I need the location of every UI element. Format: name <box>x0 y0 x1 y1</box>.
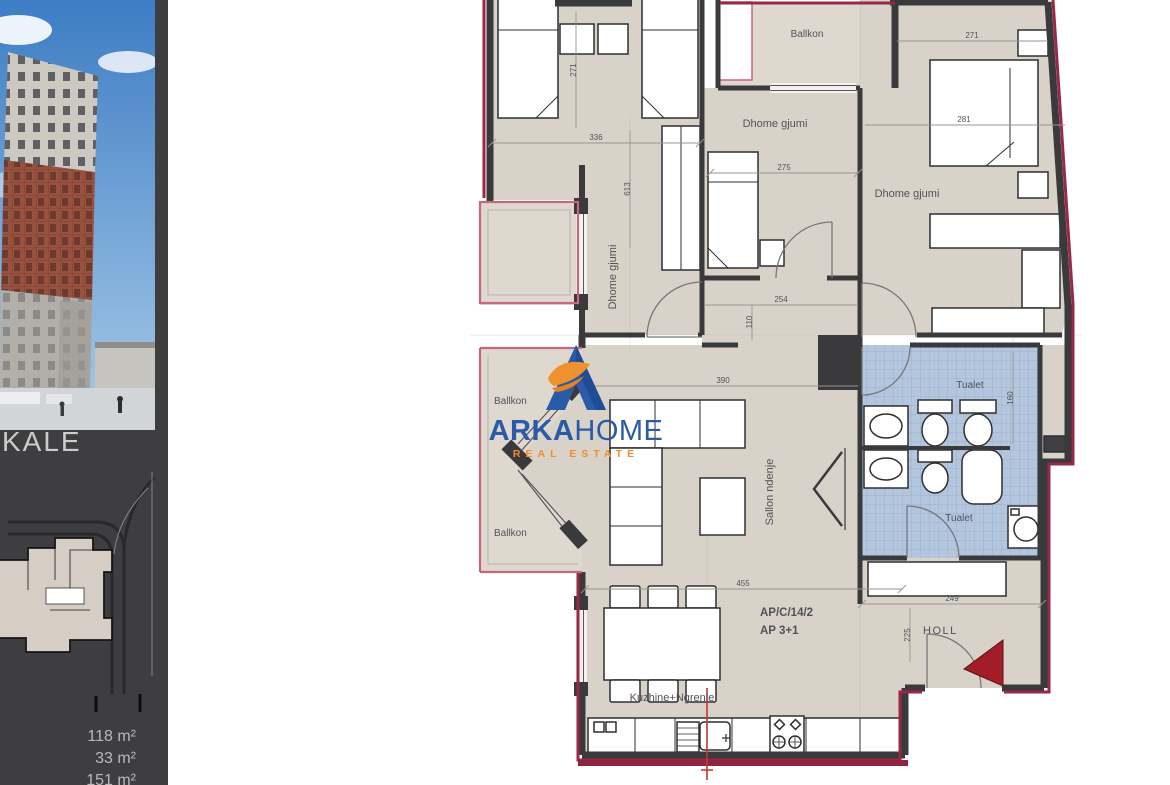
dim-kitchen-width: 455 <box>736 579 750 588</box>
shaft-block <box>818 335 860 390</box>
building-render-photo <box>0 0 155 430</box>
area-value-2: 33 m² <box>0 748 136 770</box>
dim-bed3-bed-width: 281 <box>957 115 971 124</box>
dim-corridor-width: 254 <box>774 295 788 304</box>
dim-corridor-small: 110 <box>745 315 754 328</box>
label-bedroom-right: Dhome gjumi <box>875 188 940 200</box>
label-living-room: Sallon ndenje <box>764 459 776 526</box>
area-summary: 118 m² 33 m² 151 m² <box>0 726 136 785</box>
label-kitchen-dining: Kuzhine+Ngrenie <box>630 692 715 704</box>
dim-bed1-width: 271 <box>569 63 578 77</box>
label-balcony-left-lower: Ballkon <box>494 528 527 539</box>
apartment-code-line1: AP/C/14/2 <box>760 607 813 619</box>
label-bedroom-left: Dhome gjumi <box>607 245 619 310</box>
label-balcony-top: Ballkon <box>791 29 824 40</box>
label-balcony-left-upper: Ballkon <box>494 396 527 407</box>
floor-plan: Ballkon Dhome gjumi Dhome gjumi Dhome gj… <box>470 0 1090 785</box>
apartment-code-line2: AP 3+1 <box>760 625 799 637</box>
sidebar-brochure-panel: KALE 118 m² 33 m² 151 m² <box>0 0 168 785</box>
screenshot-root: KALE 118 m² 33 m² 151 m² <box>0 0 1170 785</box>
dim-bath-height: 160 <box>1006 391 1015 405</box>
dim-hall-width: 249 <box>945 594 959 603</box>
dim-bed1-room-width: 336 <box>589 133 603 142</box>
area-value-1: 118 m² <box>0 726 136 748</box>
area-value-3: 151 m² <box>0 770 136 785</box>
dim-bed2-room-width: 275 <box>777 163 791 172</box>
label-hall: HOLL <box>923 625 958 637</box>
dim-living-width: 390 <box>716 376 730 385</box>
dim-hall-height: 225 <box>903 628 912 642</box>
dim-bed1-room-height: 613 <box>623 182 632 196</box>
site-plan-map <box>0 460 168 724</box>
label-bedroom-middle: Dhome gjumi <box>743 118 808 130</box>
label-toilet-lower: Tualet <box>945 513 973 524</box>
project-title: KALE <box>2 426 82 458</box>
label-toilet-upper: Tualet <box>956 380 984 391</box>
dim-bed3-room-width: 271 <box>965 31 979 40</box>
